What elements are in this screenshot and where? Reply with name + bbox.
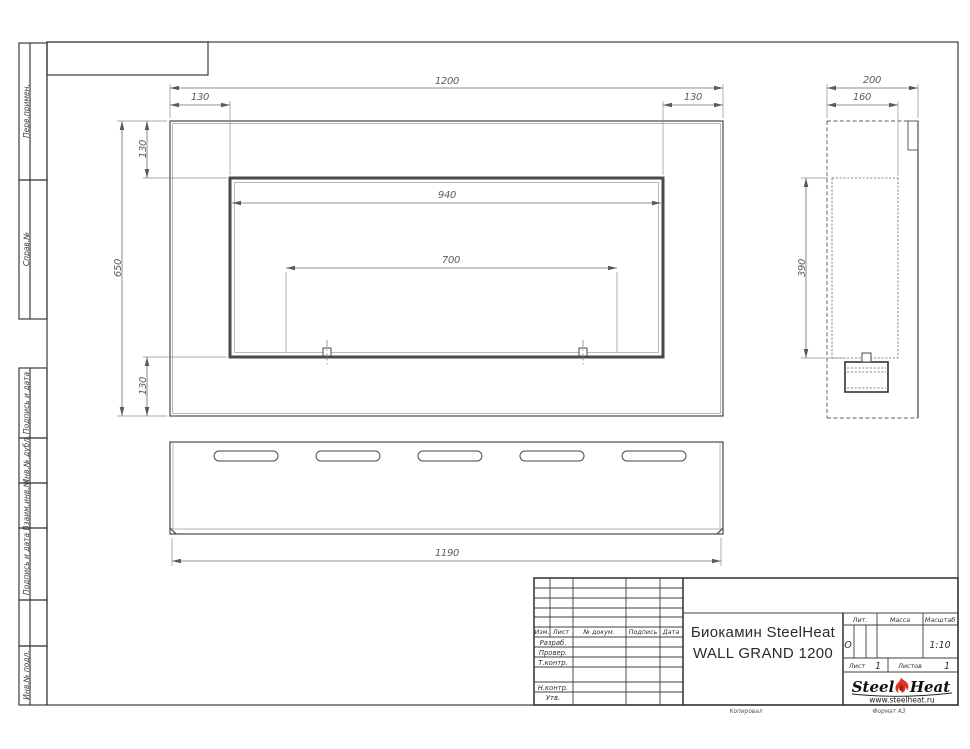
- document-title-line1: Биокамин SteelHeat: [691, 624, 836, 641]
- dim-front-bottom-offset: 130: [138, 377, 149, 395]
- row-nkontr: Н.контр.: [538, 684, 568, 692]
- top-left-reference-box: [47, 42, 208, 75]
- title-block: Изм. Лист № докум. Подпись Дата Разраб. …: [534, 578, 958, 705]
- margin-label: Справ.№: [22, 232, 31, 266]
- format-label: Формат А3: [872, 709, 905, 715]
- document-title-line2: WALL GRAND 1200: [693, 645, 833, 662]
- margin-boxes: Перв.примен. Справ.№ Подпись и дата Инв.…: [19, 43, 47, 705]
- margin-label: Инв.№ подл.: [22, 650, 31, 699]
- dim-front-opening-width: 940: [438, 190, 456, 201]
- row-prover: Провер.: [539, 649, 567, 657]
- side-view-dimensions: 200 160 390: [797, 75, 918, 358]
- side-burner-block: [845, 353, 888, 392]
- margin-label: Подпись и дата: [22, 372, 31, 435]
- sheet-label: Лист: [848, 662, 865, 670]
- lit-value: О: [844, 640, 852, 651]
- margin-label: Перв.примен.: [22, 84, 31, 138]
- footer-annotations: Копировал Формат А3: [729, 709, 905, 715]
- margin-label: Инв.№ дубл.: [22, 436, 31, 485]
- dim-side-depth: 200: [863, 75, 881, 86]
- dim-front-height: 650: [113, 259, 124, 277]
- dim-front-right-offset: 130: [684, 92, 702, 103]
- front-view: [170, 121, 723, 416]
- dim-front-top-offset: 130: [138, 140, 149, 158]
- dim-front-burner-span: 700: [442, 255, 460, 266]
- col-date: Дата: [662, 628, 680, 636]
- scale-value: 1:10: [929, 640, 950, 651]
- steelheat-logo: Steel Heat www.steelheat.ru: [852, 677, 952, 705]
- blueprint-canvas: Перв.примен. Справ.№ Подпись и дата Инв.…: [0, 0, 970, 749]
- burner-anchor-right: [579, 340, 587, 365]
- bottom-view: [170, 442, 723, 534]
- dim-side-inner-depth: 160: [853, 92, 871, 103]
- margin-label: Взаим.инв.№: [22, 479, 31, 530]
- logo-url: www.steelheat.ru: [869, 696, 935, 705]
- bottom-view-dimensions: 1190: [172, 538, 721, 566]
- col-list: Лист: [552, 628, 569, 636]
- dim-bottom-length: 1190: [435, 548, 459, 559]
- vent-slots: [214, 451, 686, 461]
- dim-front-width: 1200: [435, 76, 459, 87]
- front-view-dimensions: 1200 130 130 650 130 130 940 700: [113, 76, 723, 416]
- title-block-grid: [534, 578, 958, 705]
- logo-text-steel: Steel: [852, 678, 895, 696]
- logo-text-heat: Heat: [909, 678, 950, 696]
- copied-label: Копировал: [729, 709, 762, 715]
- row-razrab: Разраб.: [540, 639, 567, 647]
- dim-front-left-offset: 130: [191, 92, 209, 103]
- lit-label: Лит.: [852, 616, 868, 624]
- sheets-label: Листов: [897, 662, 922, 670]
- margin-label: Подпись и дата: [22, 533, 31, 596]
- sheet-frame: [47, 42, 958, 705]
- mount-bracket: [908, 121, 918, 150]
- massa-label: Масса: [890, 616, 910, 624]
- side-view: [827, 121, 918, 418]
- burner-anchor-left: [323, 340, 331, 365]
- sheets-value: 1: [944, 661, 950, 672]
- col-sign: Подпись: [629, 628, 658, 636]
- scale-label: Масштаб: [925, 616, 955, 624]
- col-izm: Изм.: [534, 628, 549, 636]
- sheet-value: 1: [875, 661, 881, 672]
- row-utv: Утв.: [546, 694, 560, 702]
- flame-icon: [895, 677, 908, 693]
- row-tkontr: Т.контр.: [538, 659, 567, 667]
- drawing-sheet: Перв.примен. Справ.№ Подпись и дата Инв.…: [0, 0, 970, 749]
- dim-side-opening-height: 390: [797, 259, 808, 277]
- col-doc: № докум.: [582, 628, 615, 636]
